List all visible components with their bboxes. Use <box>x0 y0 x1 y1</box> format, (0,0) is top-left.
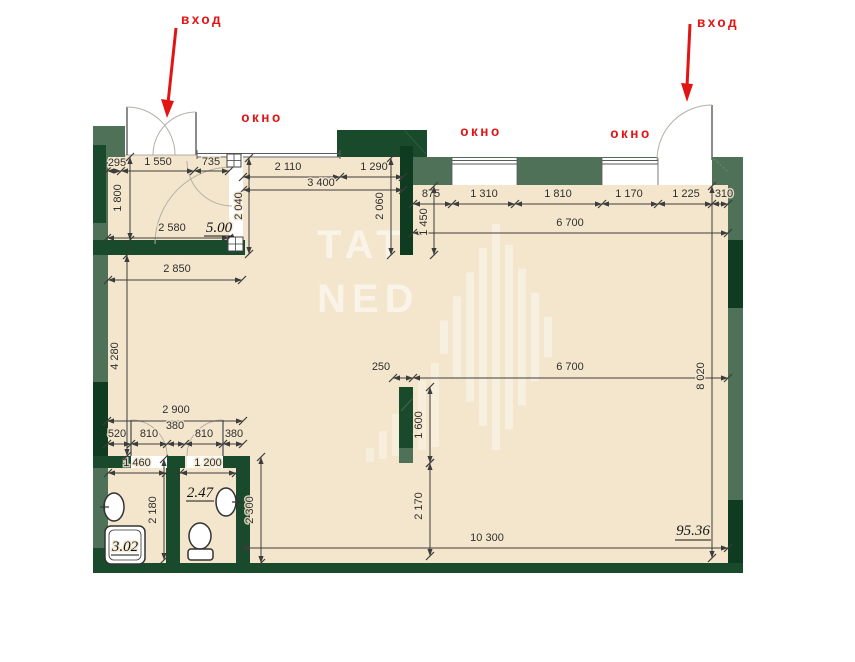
watermark-bar <box>366 448 374 462</box>
dim-label: 380 <box>166 420 184 432</box>
dim-label: 2 580 <box>158 222 186 234</box>
watermark-bar <box>440 320 448 353</box>
window-label-3: окно <box>610 126 651 141</box>
dim-label: 2 110 <box>275 161 302 173</box>
dim-label: 2 180 <box>147 496 159 524</box>
watermark-bar <box>466 272 474 402</box>
entrance-label-left: вход <box>181 12 223 27</box>
area-main-room: 95.36 <box>676 523 710 539</box>
dim-label: 2 850 <box>163 263 191 275</box>
dim-label: 6 700 <box>556 361 584 373</box>
dim-label: 1 800 <box>112 184 124 212</box>
dim-label: 1 600 <box>413 411 425 439</box>
dim-label: 1 225 <box>672 188 700 200</box>
dim-label: 735 <box>202 156 220 168</box>
dim-label: 6 700 <box>556 217 584 229</box>
window-2-opening <box>452 158 517 185</box>
dim-label: 2 900 <box>162 404 190 416</box>
dim-label: 3 400 <box>307 177 335 189</box>
door-post-symbol <box>227 154 241 167</box>
wall-left-dark-2 <box>93 382 108 458</box>
watermark-bar <box>518 269 526 406</box>
watermark-bar <box>492 224 500 450</box>
dim-label: 2 170 <box>413 492 425 520</box>
watermark-bar <box>379 431 387 459</box>
area-vestibule: 5.00 <box>206 220 233 236</box>
dim-label: 1 200 <box>194 457 222 469</box>
dim-label: 1 810 <box>544 188 572 200</box>
wall-vestibule-bottom <box>93 240 245 255</box>
watermark-bar <box>453 296 461 377</box>
area-shower-room: 3.02 <box>111 539 139 555</box>
watermark-bar <box>531 293 539 382</box>
window-label-1: окно <box>241 110 282 125</box>
dim-label: 1 450 <box>418 208 430 236</box>
dim-label: 2 040 <box>233 192 245 220</box>
window-label-2: окно <box>460 124 501 139</box>
dim-label: 8 020 <box>695 362 707 390</box>
dim-label: 810 <box>195 428 213 440</box>
entry-opening-right <box>658 157 712 185</box>
dim-label: 520 <box>108 428 126 440</box>
dim-label: 2 300 <box>244 496 256 524</box>
dim-label: 4 280 <box>109 342 121 370</box>
dim-label: 2 060 <box>374 192 386 220</box>
dim-label: 250 <box>372 361 390 373</box>
wall-bath-top-pier <box>167 456 185 468</box>
wall-left-dark-1 <box>93 145 106 223</box>
wall-bath-top-2 <box>223 456 250 468</box>
toilet-bowl <box>189 523 211 549</box>
wall-right-dark-1 <box>728 240 743 308</box>
watermark-bar <box>544 317 552 358</box>
wall-bath-middle <box>166 468 180 563</box>
dim-label: 1 550 <box>144 156 172 168</box>
area-wc: 2.47 <box>187 485 215 501</box>
watermark-line2: NED <box>317 277 419 321</box>
dim-label: 380 <box>225 428 243 440</box>
dim-label: 295 <box>108 157 126 169</box>
watermark-bar <box>392 414 400 456</box>
dim-label: 310 <box>715 188 733 200</box>
toilet-tank <box>188 549 213 560</box>
wall-top-block <box>337 130 427 157</box>
dim-label: 1 290 <box>360 161 388 173</box>
wall-pier <box>400 146 413 255</box>
entrance-label-right: вход <box>697 15 739 30</box>
watermark-bar <box>479 248 487 426</box>
floor-plan: TAT NED <box>0 0 855 662</box>
dim-label: 10 300 <box>470 532 504 544</box>
watermark-bar <box>431 363 439 447</box>
dim-label: 810 <box>140 428 158 440</box>
floor-plan-svg: TAT NED <box>0 0 855 662</box>
wall-bottom <box>93 563 743 573</box>
watermark-line1: TAT <box>317 223 407 267</box>
door-post-symbol <box>228 237 243 251</box>
dim-label: 1 170 <box>615 188 643 200</box>
dim-label: 1 460 <box>123 457 151 469</box>
window-3-opening <box>602 158 658 185</box>
dim-label: 1 310 <box>470 188 498 200</box>
wall-right-dark-2 <box>728 500 743 573</box>
watermark-bar <box>505 245 513 430</box>
wall-partition-tip <box>399 448 413 463</box>
